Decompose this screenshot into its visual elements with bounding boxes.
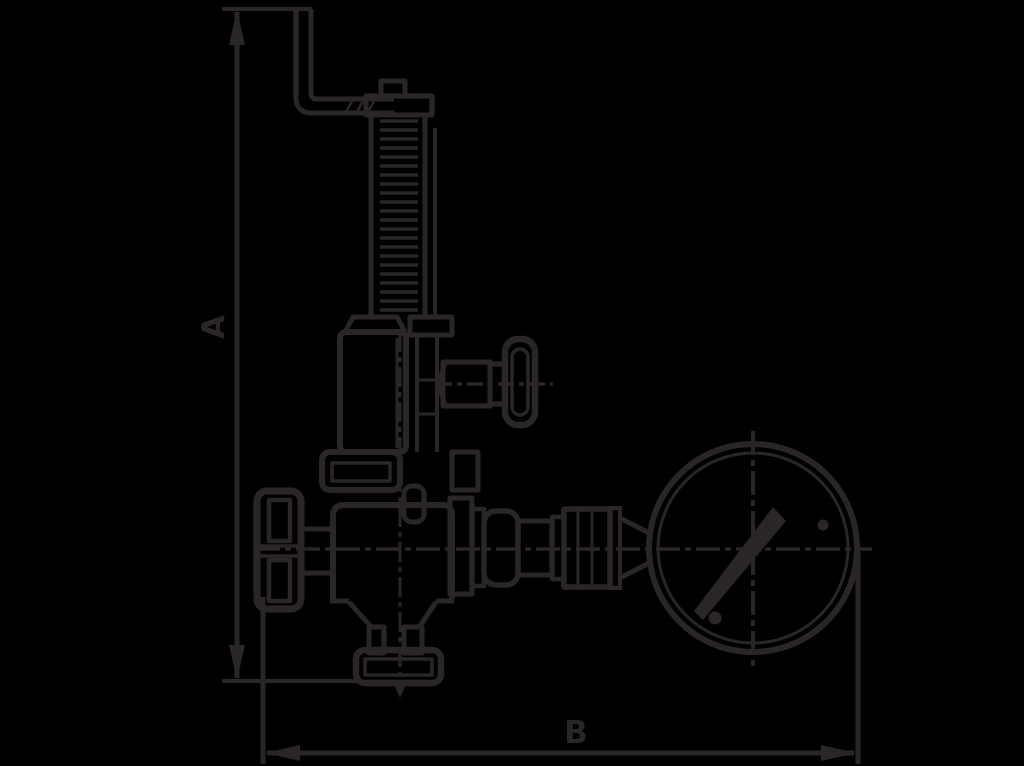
- dimension-b-arrow-right: [821, 745, 856, 761]
- union-end-bars: [610, 508, 620, 588]
- gauge-neck-bottom: [620, 562, 651, 578]
- knob-grip-inner: [512, 349, 528, 415]
- dimension-a-label: A: [196, 315, 232, 339]
- dimension-b-arrow-left: [265, 745, 300, 761]
- spring-coils: [380, 118, 422, 316]
- drawing-stage: A B: [0, 0, 1024, 766]
- handwheel-spoke-top: [269, 500, 290, 541]
- bonnet-flange-inner: [332, 463, 390, 481]
- valve-body: [330, 505, 454, 653]
- spindle-collar: [410, 317, 452, 335]
- valve-dimension-drawing: A B: [0, 0, 1024, 766]
- flow-arrow: [393, 682, 407, 698]
- handwheel-spoke-bottom: [269, 560, 290, 601]
- test-knob: [436, 339, 553, 425]
- bonnet-side-block: [452, 452, 478, 490]
- gauge-coupling: [450, 498, 651, 594]
- gauge-pin-lower: [709, 612, 722, 625]
- body-outline: [333, 505, 452, 599]
- dimension-b: B: [263, 552, 858, 764]
- gauge-pin-upper: [818, 520, 829, 531]
- dimension-b-label: B: [564, 715, 588, 751]
- gauge-needle: [694, 507, 786, 620]
- dimension-a-arrow-down: [229, 645, 245, 680]
- knob-grip-outer: [505, 339, 535, 425]
- gauge-neck-top: [620, 518, 651, 534]
- lever-knurling: [346, 101, 374, 112]
- dimension-a-arrow-up: [229, 10, 245, 45]
